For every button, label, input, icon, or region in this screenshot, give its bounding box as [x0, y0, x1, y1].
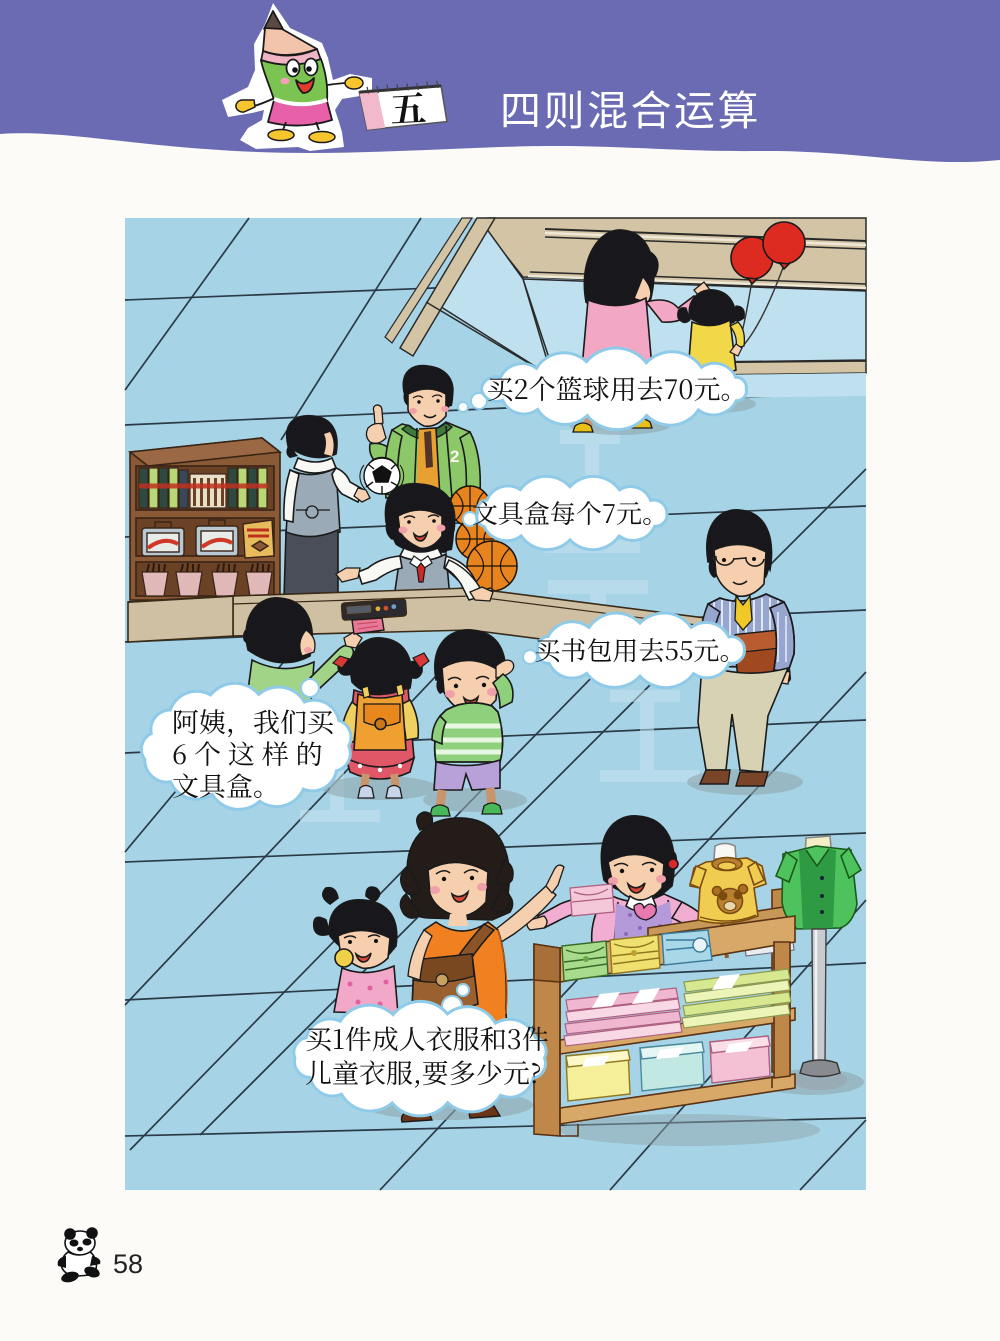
svg-text:四则混合运算: 四则混合运算: [500, 78, 761, 137]
svg-text:文具盒每个7元。: 文具盒每个7元。: [472, 494, 668, 531]
svg-text:五: 五: [389, 81, 428, 134]
svg-text:2: 2: [450, 447, 459, 466]
svg-text:买书包用去55元。: 买书包用去55元。: [534, 631, 745, 668]
svg-text:58: 58: [113, 1249, 143, 1279]
svg-text:文具盒。: 文具盒。: [172, 765, 280, 804]
svg-text:儿童衣服,要多少元?: 儿童衣服,要多少元?: [305, 1052, 542, 1091]
svg-text:买2个篮球用去70元。: 买2个篮球用去70元。: [487, 368, 748, 407]
